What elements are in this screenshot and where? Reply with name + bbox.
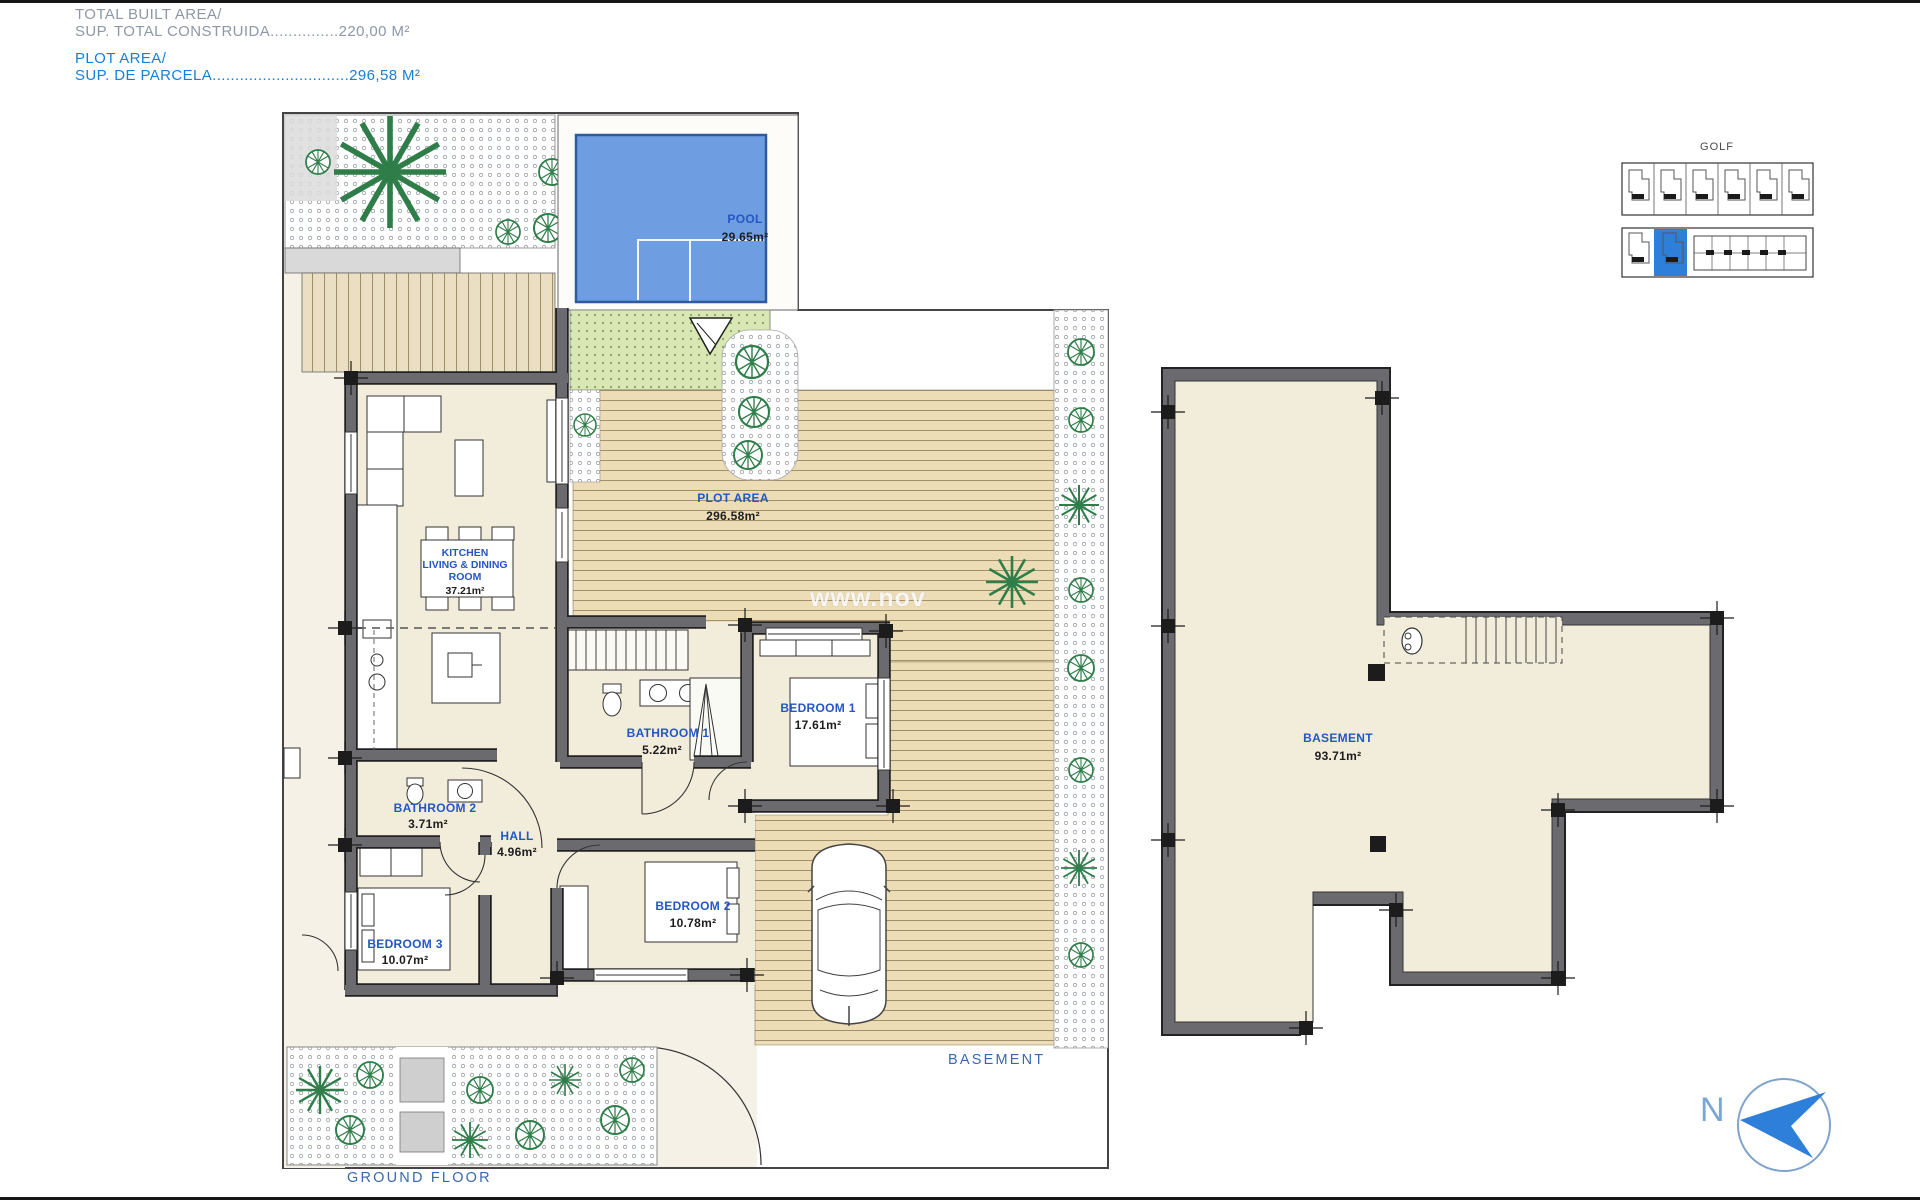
tree-icon [734, 441, 762, 469]
basement-stairs [1384, 617, 1562, 663]
tree-icon [739, 397, 769, 427]
ac-unit [284, 748, 300, 778]
stairs [566, 630, 688, 670]
tree-icon [736, 346, 768, 378]
chair [492, 597, 514, 610]
toilet [1402, 628, 1422, 654]
kitchen-label: LIVING & DINING [422, 559, 507, 571]
gray-terrace [285, 248, 460, 273]
toilet [603, 692, 621, 716]
chair [426, 527, 448, 540]
tree-icon [1068, 339, 1094, 365]
tree-icon [357, 1062, 383, 1088]
bathroom2-area: 3.71m² [408, 817, 448, 831]
bedroom2-area: 10.78m² [670, 916, 717, 930]
basement-area: 93.71m² [1315, 749, 1362, 763]
chair [426, 597, 448, 610]
sink [650, 685, 667, 702]
coffee-table [455, 440, 483, 496]
tree-icon [336, 1116, 364, 1144]
north-letter: N [1700, 1091, 1725, 1130]
column [1370, 836, 1386, 852]
bedroom3-area: 10.07m² [382, 953, 429, 967]
site-location-map [1622, 163, 1813, 277]
tree-icon [1069, 758, 1093, 782]
tree-icon [516, 1121, 544, 1149]
bathroom1-label: BATHROOM 1 [627, 726, 710, 740]
car [808, 844, 890, 1026]
tree-icon [620, 1058, 644, 1082]
ground-floor-plan: POOL 29.65m² [283, 113, 1108, 1168]
plan-drawing: POOL 29.65m² [0, 0, 1920, 1200]
pool: POOL 29.65m² [576, 135, 768, 302]
garden-blob-right [722, 330, 798, 480]
bedroom3-label: BEDROOM 3 [367, 937, 442, 951]
ground-floor-title: GROUND FLOOR [347, 1170, 492, 1186]
bedroom1-label: BEDROOM 1 [780, 701, 855, 715]
floorplan-page: TOTAL BUILT AREA/ SUP. TOTAL CONSTRUIDA.… [0, 0, 1920, 1200]
tree-icon [574, 414, 596, 436]
kitchen-label: KITCHEN [442, 547, 489, 559]
hall-area: 4.96m² [497, 845, 537, 859]
basement-label: BASEMENT [1303, 731, 1373, 745]
basement-title: BASEMENT [948, 1052, 1045, 1068]
tree-icon [467, 1077, 493, 1103]
tree-icon [1068, 655, 1094, 681]
basement-interior [1175, 381, 1710, 1022]
tree-icon [1069, 943, 1093, 967]
wardrobe [560, 886, 588, 970]
bathroom1-area: 5.22m² [642, 743, 682, 757]
tree-icon [496, 220, 520, 244]
entry-step [400, 1058, 444, 1102]
pool-label: POOL [727, 212, 762, 226]
tv-unit [547, 400, 556, 482]
wardrobe [760, 640, 870, 656]
sink [458, 784, 473, 799]
chair [492, 527, 514, 540]
kitchen-area: 37.21m² [445, 585, 485, 597]
basement-plan: BASEMENT 93.71m² [1151, 368, 1734, 1045]
chair [459, 527, 481, 540]
hall-label: HALL [500, 829, 533, 843]
north-compass-icon [1738, 1079, 1830, 1171]
garden-bottom [287, 1047, 657, 1165]
pool-area: 29.65m² [722, 230, 769, 244]
bathroom2-label: BATHROOM 2 [394, 801, 477, 815]
chair [459, 597, 481, 610]
bedroom1-area: 17.61m² [795, 718, 842, 732]
highlighted-unit [1654, 229, 1687, 276]
garden-top-left [285, 115, 565, 248]
kitchen-label: ROOM [449, 571, 482, 583]
wood-deck-vertical [302, 273, 555, 372]
bedroom2-label: BEDROOM 2 [655, 899, 730, 913]
plot-area-label-name: PLOT AREA [697, 491, 769, 505]
tree-icon [306, 150, 330, 174]
golf-label: GOLF [1667, 141, 1767, 153]
watermark: www.nov [810, 584, 926, 613]
plot-area-label-area: 296.58m² [706, 509, 760, 523]
entry-step [400, 1112, 444, 1152]
column [1368, 664, 1385, 681]
tree-icon [1069, 408, 1093, 432]
tree-icon [1069, 578, 1093, 602]
garden-strip-boundary [1054, 310, 1108, 1048]
tree-icon [601, 1106, 629, 1134]
